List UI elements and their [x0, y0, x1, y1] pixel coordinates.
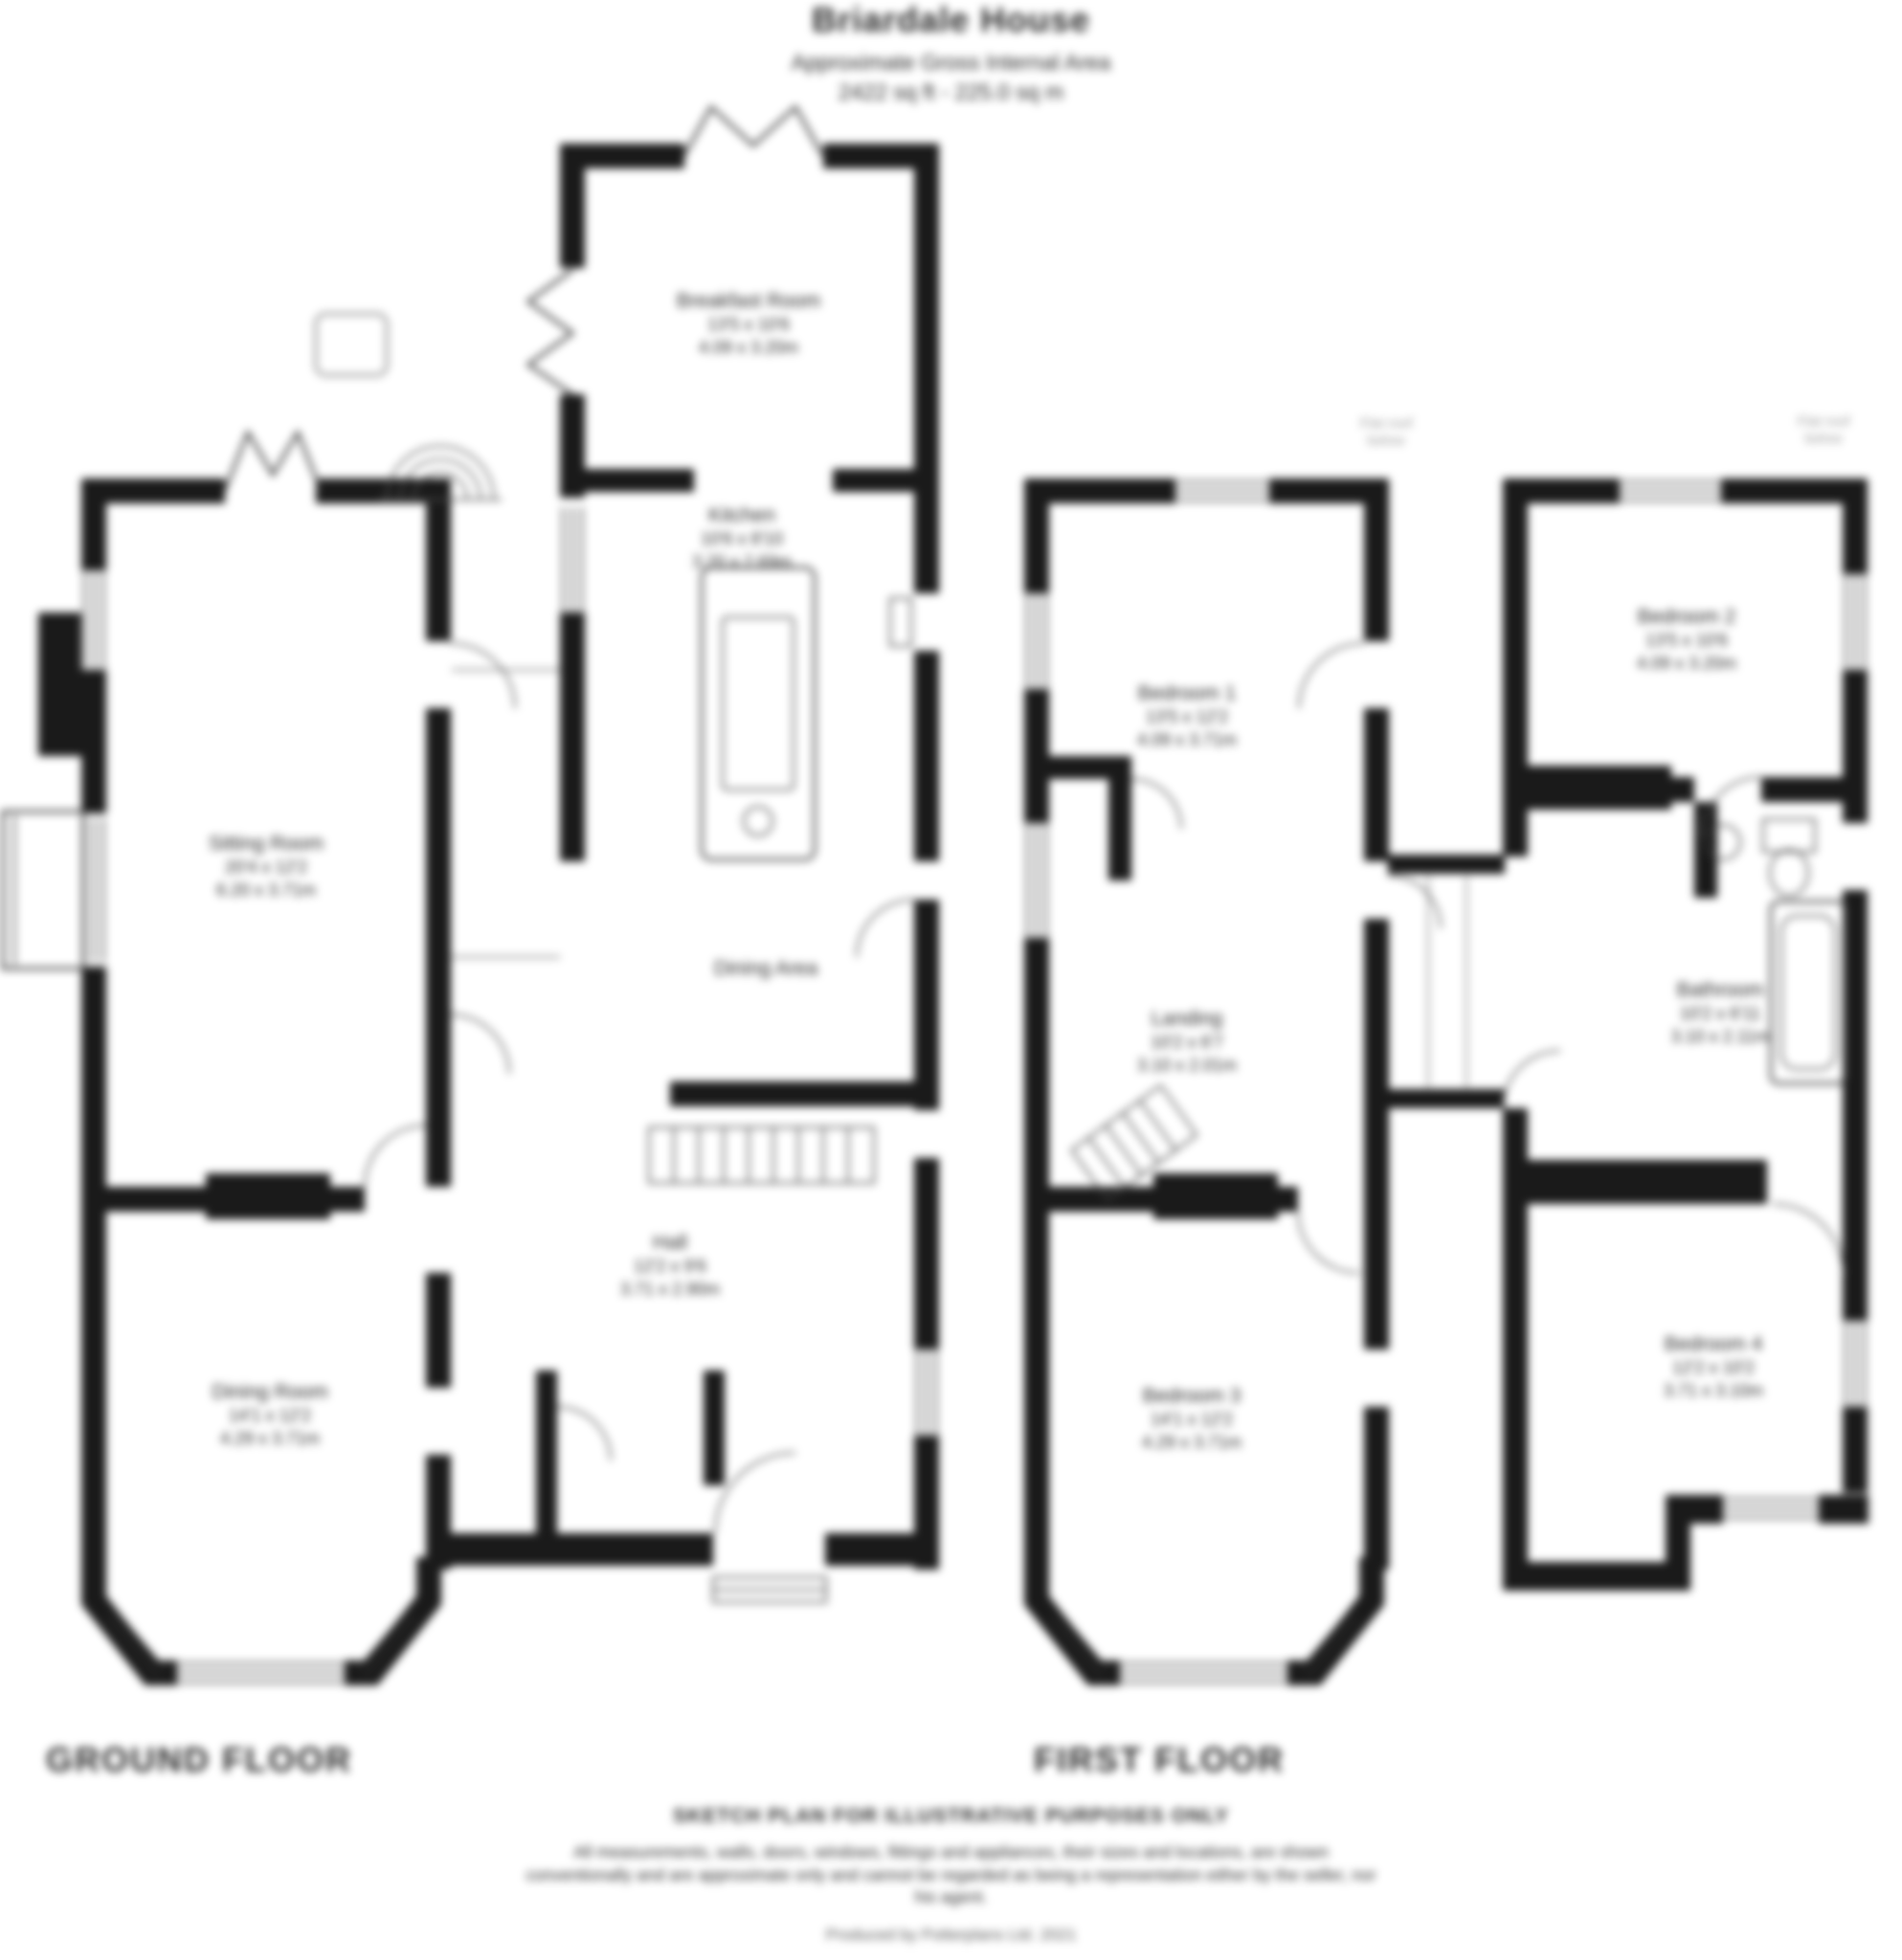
disclaimer-title: SKETCH PLAN FOR ILLUSTRATIVE PURPOSES ON… — [0, 1805, 1902, 1828]
ground-floor-label: GROUND FLOOR — [46, 1740, 352, 1780]
ground-staircase — [649, 1127, 874, 1183]
room-label-bathroom: Bathroom 10'2 x 6'11 3.10 x 2.11m — [1671, 977, 1770, 1048]
first-builtin-wall-top — [1528, 766, 1671, 810]
room-label-dining-room: Dining Room 14'1 x 12'2 4.29 x 3.71m — [212, 1379, 327, 1450]
first-floor-plan — [1024, 479, 1868, 1685]
plan-drawing — [0, 0, 1902, 1960]
ground-side-bay-window — [3, 812, 103, 969]
ground-chimney — [38, 612, 81, 756]
annotation-flat-roof-right: Flat roof below — [1797, 413, 1849, 448]
annotation-flat-roof-left: Flat roof below — [1359, 415, 1412, 450]
front-door-step — [713, 1577, 826, 1602]
first-corridor — [1388, 855, 1505, 1108]
first-bay-window-wall — [1037, 1557, 1372, 1673]
ground-door-leaf — [890, 598, 911, 646]
disclaimer-body: All measurements, walls, doors, windows,… — [0, 1841, 1902, 1909]
ground-top-bay-window — [225, 433, 321, 490]
room-label-sitting-room: Sitting Room 20'4 x 12'2 6.20 x 3.71m — [209, 831, 324, 902]
first-builtin-wall-bottom — [1528, 1160, 1767, 1204]
room-label-landing: Landing 10'2 x 6'7 3.10 x 2.01m — [1137, 1006, 1237, 1077]
ground-fireplace — [206, 1173, 330, 1219]
floorplan-canvas: Briardale House Approximate Gross Intern… — [0, 0, 1902, 1960]
bathtub — [1771, 902, 1846, 1083]
ground-bay-window-wall — [94, 1557, 429, 1673]
room-label-bedroom-3: Bedroom 3 14'1 x 12'2 4.29 x 3.71m — [1142, 1383, 1242, 1454]
ground-passage-lines — [452, 670, 560, 957]
first-fireplace — [1153, 1173, 1278, 1219]
ground-window-left — [84, 570, 103, 670]
first-floor-label: FIRST FLOOR — [1034, 1740, 1285, 1780]
room-label-bedroom-2: Bedroom 2 13'5 x 10'6 4.09 x 3.20m — [1637, 604, 1736, 675]
outbuilding-outline — [316, 314, 387, 375]
produced-by: Produced by Potterplans Ltd. 2021 — [0, 1926, 1902, 1945]
kitchen-island — [702, 568, 815, 859]
toilet — [1763, 819, 1815, 896]
room-label-bedroom-4: Bedroom 4 12'2 x 10'2 3.71 x 3.10m — [1664, 1331, 1763, 1402]
room-label-kitchen: Kitchen 10'6 x 8'10 3.20 x 2.69m — [692, 502, 792, 573]
room-label-dining-area: Dining Area — [714, 955, 818, 981]
room-label-hall: Hall 12'2 x 9'6 3.71 x 2.90m — [620, 1230, 720, 1301]
room-label-breakfast-room: Breakfast Room 13'5 x 10'6 4.09 x 3.20m — [677, 288, 821, 359]
room-label-bedroom-1: Bedroom 1 13'5 x 12'2 4.09 x 3.71m — [1137, 680, 1237, 751]
